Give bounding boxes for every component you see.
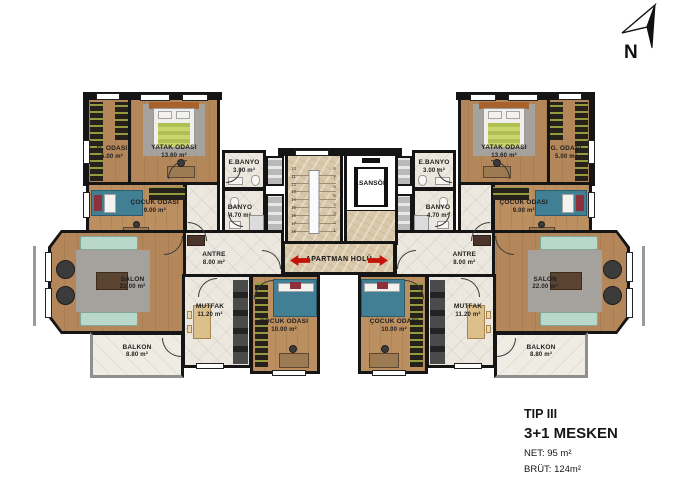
elevator-lobby [344,211,398,245]
stair-numbers-right: 87654321 [330,167,339,234]
wardrobe [575,102,588,181]
sofa [540,236,598,250]
room-label: ÇOCUK ODASI 9.00 m² [497,199,550,215]
window [470,94,496,101]
bed-sheet [562,194,574,213]
title-block: TIP III 3+1 MESKEN NET: 95 m² BRÜT: 124m… [524,407,618,475]
sofa [540,312,598,326]
pillow [377,282,388,289]
wardrobe [493,187,529,200]
kid-bed [361,279,405,317]
window [558,93,582,100]
window [588,140,595,164]
unit-type: 3+1 MESKEN [524,425,618,442]
room-area: 8.00 m² [452,260,475,268]
room-area: 5.00 m² [549,154,583,162]
kitchen-counter [430,280,445,364]
desk-chair [538,221,545,228]
room-area: 9.00 m² [497,208,550,216]
room-dressing: G. ODASI 5.00 m² [546,97,592,185]
pillow [506,111,520,119]
window [626,252,633,282]
elevator-car [354,167,388,207]
elevator-label: ASANSÖR [347,180,395,187]
window [626,288,633,318]
facade-trim [642,246,645,326]
elevator-machine [362,158,380,163]
window [508,94,538,101]
north-arrow: N [614,2,670,64]
window [588,192,595,218]
room-area: 11.20 m² [443,312,493,320]
toilet [418,175,427,186]
armchair [603,286,622,305]
wardrobe [550,102,563,140]
staircase: 101112131415161718 87654321 [285,153,343,245]
desk-chair [381,345,389,353]
room-area: 13.60 m² [461,153,547,161]
room-area: 10.00 m² [367,327,421,335]
floor-plan-canvas: G. ODASI 5.00 m² YATAK ODASI 13.60 m² [0,0,678,480]
apartment-hall: APARTMAN HOLÜ [282,241,396,275]
elevator: ASANSÖR [344,153,398,213]
desk [369,353,399,368]
window [372,370,406,376]
stair-rail [309,170,320,234]
room-label: SALON 22.00 m² [533,276,559,292]
north-label: N [624,42,638,63]
pillow [488,111,502,119]
room-label: ÇOCUK ODASI 10.00 m² [367,318,421,334]
room-label: YATAK ODASI 13.60 m² [461,144,547,160]
net-area: NET: 95 m² [524,448,618,459]
plan-type: TIP III [524,407,618,421]
room-label: ANTRE 8.00 m² [452,251,475,267]
room-area: 22.00 m² [533,284,559,292]
window [295,150,329,156]
gross-area: BRÜT: 124m² [524,464,618,475]
double-bed [483,108,525,148]
armchair [603,260,622,279]
room-area: 8.80 m² [497,352,585,360]
room-label: MUTFAK 11.20 m² [443,303,493,319]
room-label: G. ODASI 5.00 m² [549,145,583,161]
pillow [576,195,584,211]
chair [486,325,491,333]
stair-numbers-left: 101112131415161718 [289,167,298,234]
window [454,363,482,369]
